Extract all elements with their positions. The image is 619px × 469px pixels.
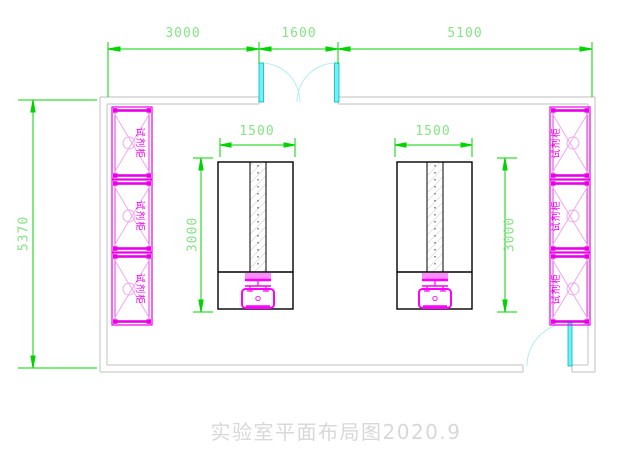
door-leaf-left [259, 63, 264, 102]
cad-floorplan-canvas[interactable]: 3000 1600 5100 5370 1500 3000 1500 3000 … [0, 0, 619, 469]
dimension-lines [18, 42, 592, 368]
cabinet [550, 107, 590, 179]
reagent-cabinets-left [112, 107, 152, 325]
lab-bench-right [397, 162, 472, 309]
floorplan-drawing [0, 0, 619, 469]
bench-service-chase [250, 162, 266, 272]
bench-service-chase [427, 162, 443, 272]
room-walls [100, 97, 595, 372]
single-exit-door [527, 323, 572, 366]
cabinet [550, 180, 590, 252]
double-entry-door [259, 63, 339, 102]
cabinet [112, 180, 152, 252]
cabinet [112, 253, 152, 325]
reagent-cabinets-right [550, 107, 590, 325]
cabinet [550, 253, 590, 325]
door-leaf-right [335, 63, 340, 102]
lab-bench-left [218, 162, 293, 309]
cabinet [112, 107, 152, 179]
door-leaf [568, 323, 572, 366]
